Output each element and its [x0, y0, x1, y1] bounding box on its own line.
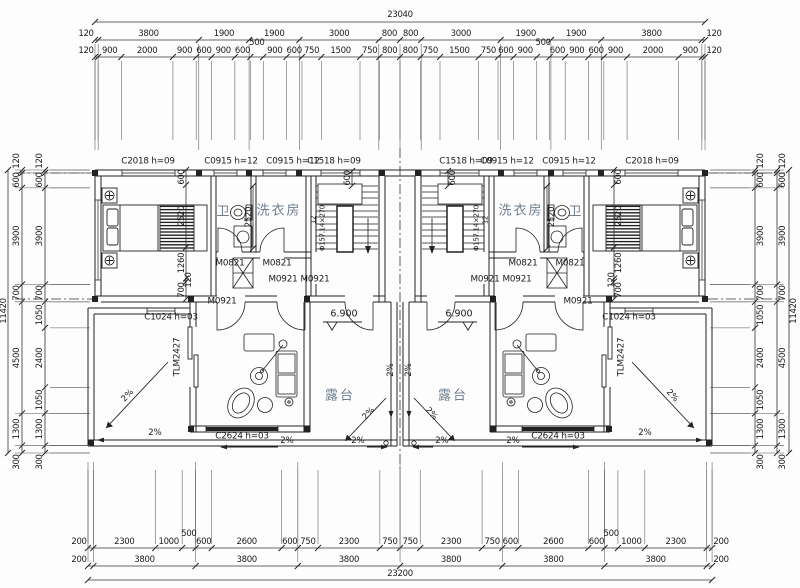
level-marker: [323, 322, 362, 330]
unit-left: [88, 170, 397, 449]
bath-fixtures: [231, 205, 253, 247]
unit-right-mirror: [403, 170, 712, 449]
floor-plan-canvas: 2304012038001900190030008008003000190019…: [0, 0, 800, 588]
slope-arrows: [97, 362, 393, 449]
dimension-layer: [5, 19, 792, 583]
drain: [384, 441, 388, 445]
duct-shaft: [233, 258, 253, 288]
staircase: [316, 184, 378, 254]
bed: [102, 188, 207, 268]
plan-linework: [0, 0, 800, 588]
centerlines: [15, 148, 785, 470]
furniture: [222, 334, 297, 423]
